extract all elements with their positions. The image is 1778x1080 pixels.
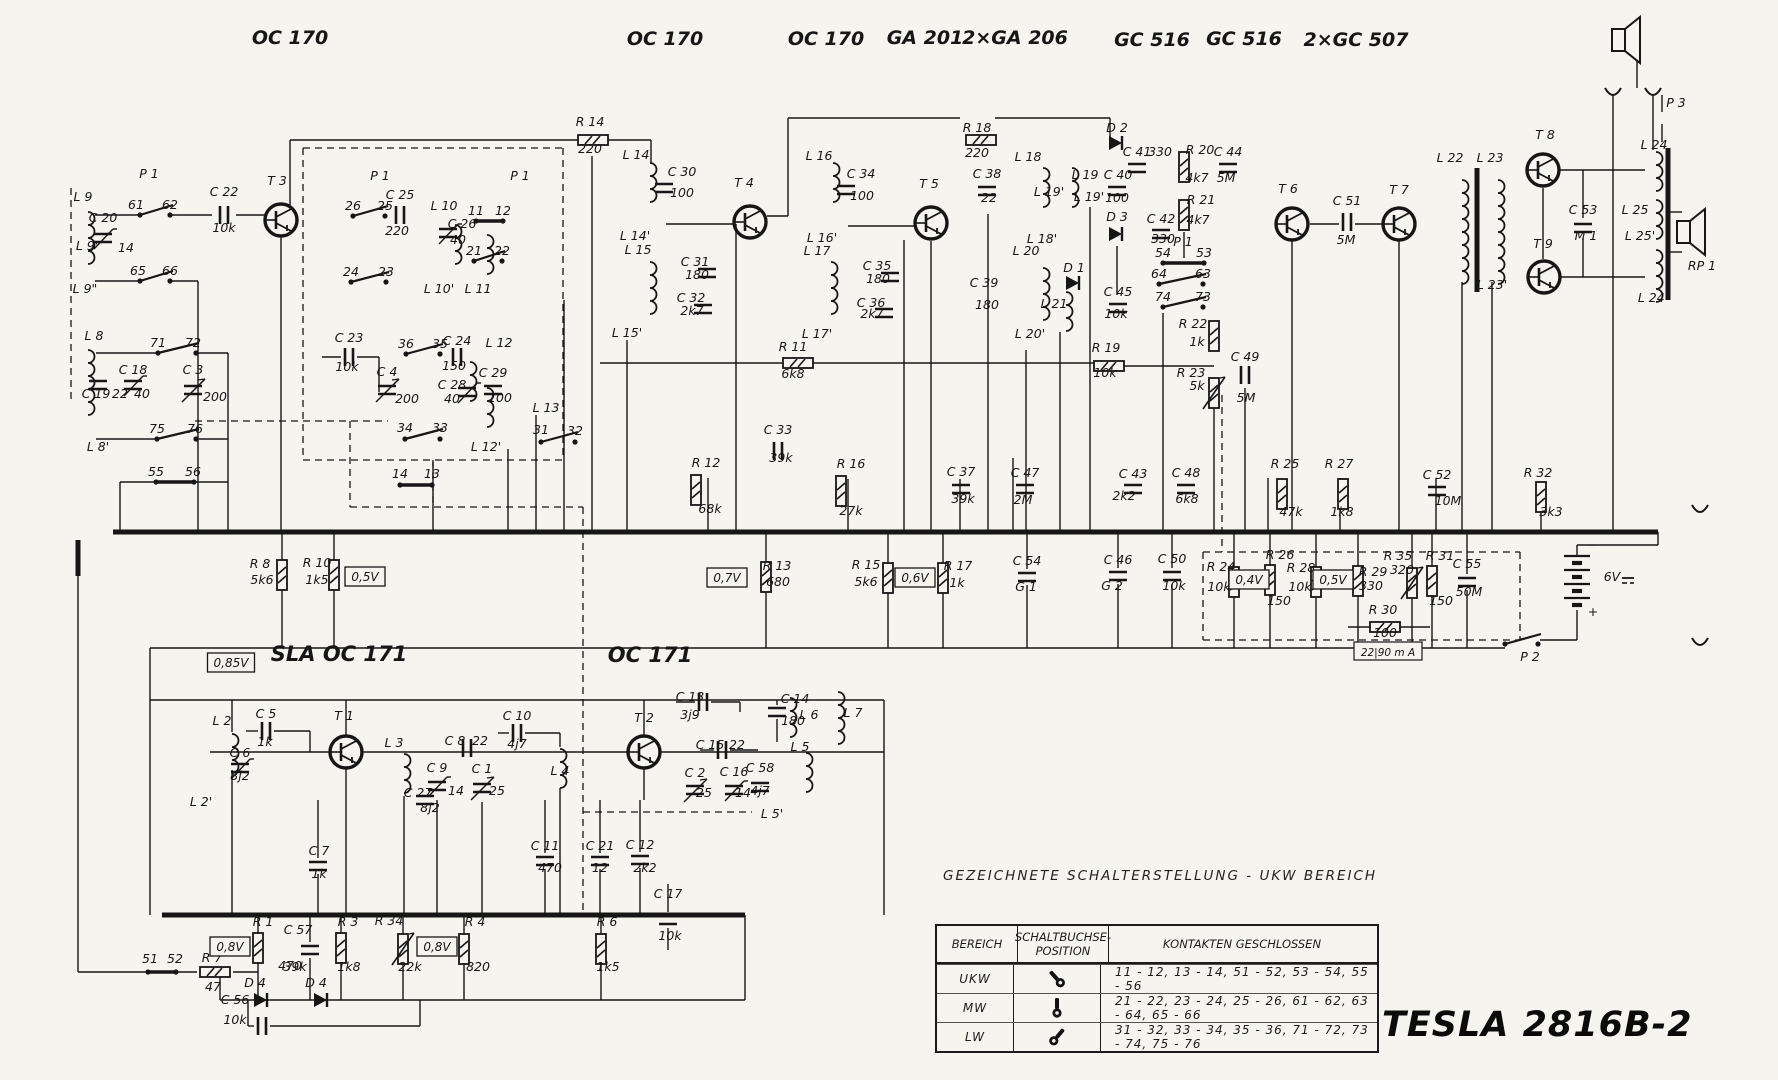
diode-symbol <box>1109 227 1122 241</box>
resistor-symbol <box>883 563 893 593</box>
pot-wiper-arrow <box>409 933 414 934</box>
component-label: C 24 <box>443 333 472 348</box>
switch-open-lever <box>1505 634 1541 644</box>
component-label: 220 <box>578 141 602 156</box>
transistor-symbol <box>745 225 762 234</box>
component-label: C 13 <box>676 689 705 704</box>
component-label: R 13 <box>763 558 792 573</box>
component-label: 10k <box>335 359 359 374</box>
component-label: 25 <box>696 785 712 800</box>
component-label: 5M <box>1217 170 1236 185</box>
component-label: 74 <box>1155 289 1171 304</box>
component-label: 2k7 <box>680 303 703 318</box>
component-label: 55 <box>148 464 164 479</box>
component-label: + <box>1588 604 1598 619</box>
component-label: R 10 <box>303 555 332 570</box>
component-label: 22 <box>472 733 488 748</box>
component-label: 26 <box>345 198 361 213</box>
component-label: T 1 <box>334 708 354 723</box>
component-label: L 21 <box>1041 296 1068 311</box>
component-label: C 54 <box>1013 553 1042 568</box>
component-label: 8j2 <box>420 800 439 815</box>
device-type-label: GC 516 <box>1206 28 1282 50</box>
component-label: 1k5 <box>305 572 328 587</box>
component-label: C 48 <box>1172 465 1201 480</box>
component-label: 1k <box>1189 334 1205 349</box>
component-label: C 51 <box>1333 193 1362 208</box>
voltage-badge-label: 0,5V <box>351 570 379 584</box>
component-label: 54 <box>1155 245 1171 260</box>
terminal-hook-icon <box>1692 638 1708 645</box>
component-label: 200 <box>395 391 419 406</box>
component-label: 6V <box>1604 569 1622 584</box>
switch-contact <box>167 278 172 283</box>
coil-symbol <box>1043 268 1050 320</box>
component-label: C 58 <box>746 760 775 775</box>
component-label: 100 <box>850 188 874 203</box>
component-label: P 1 <box>510 168 529 183</box>
component-label: C 43 <box>1119 466 1148 481</box>
component-label: C 57 <box>284 922 313 937</box>
component-label: R 18 <box>963 120 992 135</box>
component-label: L 10' <box>424 281 454 296</box>
transistor-symbol <box>1538 158 1555 167</box>
component-label: 40 <box>450 232 466 247</box>
switch-contact <box>383 279 388 284</box>
component-label: 24 <box>343 264 359 279</box>
contacts-closed-cell: 31 - 32, 33 - 34, 35 - 36, 71 - 72, 73 -… <box>1101 1023 1377 1051</box>
schematic-canvas: L 9P 16162C 2014C 2210kT 36566L 9'L 9"26… <box>0 0 1778 1080</box>
component-label: 34 <box>397 420 413 435</box>
col-bereich-header: BEREICH <box>937 926 1018 962</box>
component-label: L 13 <box>533 400 560 415</box>
component-label: 10k <box>1162 578 1186 593</box>
component-label: P 3 <box>1666 95 1686 110</box>
component-label: L 19' <box>1074 189 1104 204</box>
component-label: L 11 <box>465 281 492 296</box>
component-label: 8j2 <box>230 768 249 783</box>
device-type-label: GC 516 <box>1114 29 1190 51</box>
component-label: L 18 <box>1015 149 1042 164</box>
component-label: C 8 <box>445 733 466 748</box>
component-label: 32 <box>567 423 583 438</box>
component-label: T 9 <box>1533 236 1553 251</box>
component-label: D 4 <box>305 975 327 990</box>
component-label: C 20 <box>89 210 118 225</box>
component-label: L 23 <box>1477 150 1504 165</box>
contacts-closed-cell: 11 - 12, 13 - 14, 51 - 52, 53 - 54, 55 -… <box>1101 965 1377 993</box>
component-label: T 8 <box>1535 127 1555 142</box>
component-label: C 26 <box>448 216 477 231</box>
component-label: C 56 <box>221 992 250 1007</box>
voltage-badge-label: 0,8V <box>423 940 451 954</box>
component-label: 10k <box>1207 579 1231 594</box>
component-label: 61 <box>128 197 144 212</box>
contact-table-header: BEREICH SCHALTBUCHSE- POSITION KONTAKTEN… <box>937 926 1377 964</box>
switch-contact <box>1200 281 1205 286</box>
component-label: T 5 <box>919 176 939 191</box>
component-label: 68k <box>698 501 722 516</box>
component-label: C 12 <box>626 837 655 852</box>
brand-logo: TESLA 2816B-2 <box>1382 1005 1693 1045</box>
resistor-symbol <box>1209 321 1219 351</box>
component-label: 2k2 <box>633 860 656 875</box>
device-type-label: OC 170 <box>252 27 328 49</box>
component-label: 65 <box>130 263 146 278</box>
component-label: L 17 <box>804 243 831 258</box>
component-label: 2k2 <box>1112 488 1135 503</box>
component-label: 100 <box>1105 190 1129 205</box>
transistor-symbol <box>745 210 762 219</box>
switch-contact <box>437 436 442 441</box>
section-title: OC 171 <box>608 643 692 667</box>
component-label: 27k <box>839 503 863 518</box>
component-label: L 2' <box>190 794 212 809</box>
component-label: 14 <box>735 785 751 800</box>
transistor-symbol <box>341 740 358 749</box>
component-label: 5k <box>1189 378 1205 393</box>
component-label: 330 <box>1151 231 1175 246</box>
component-label: 4k7 <box>1185 170 1208 185</box>
switch-contact <box>437 351 442 356</box>
component-label: G 2 <box>1101 578 1123 593</box>
component-label: C 42 <box>1147 211 1176 226</box>
contact-table-row: MW21 - 22, 23 - 24, 25 - 26, 61 - 62, 63… <box>937 993 1377 1022</box>
component-label: 10k <box>658 928 682 943</box>
component-label: 1k8 <box>1330 504 1353 519</box>
component-label: 76 <box>187 421 203 436</box>
contact-table-row: UKW11 - 12, 13 - 14, 51 - 52, 53 - 54, 5… <box>937 964 1377 993</box>
component-label: R 32 <box>1524 465 1553 480</box>
speaker-icon <box>1677 221 1690 243</box>
transistor-symbol <box>1287 212 1304 221</box>
component-label: C 47 <box>1011 465 1040 480</box>
terminal-hook-icon <box>1692 505 1708 512</box>
component-label: 25 <box>489 783 505 798</box>
voltage-badge-label: 0,85V <box>214 656 250 670</box>
component-label: 470 <box>538 860 562 875</box>
component-label: 150 <box>1429 593 1453 608</box>
component-label: 10k <box>1104 306 1128 321</box>
component-label: 22 <box>494 243 510 258</box>
component-label: 56 <box>185 464 201 479</box>
component-label: C 40 <box>1104 167 1133 182</box>
switch-contact <box>1535 641 1540 646</box>
component-label: R 29 <box>1359 564 1388 579</box>
component-label: 23 <box>378 264 394 279</box>
component-label: R 16 <box>837 456 866 471</box>
component-label: 320 <box>1390 562 1414 577</box>
component-label: 180 <box>975 297 999 312</box>
device-type-label: OC 170 <box>788 28 864 50</box>
coil-symbol <box>650 262 657 314</box>
transistor-symbol <box>926 226 943 235</box>
component-label: L 8' <box>87 439 109 454</box>
component-label: C 2 <box>685 765 706 780</box>
resistor-symbol <box>253 933 263 963</box>
component-label: L 25' <box>1625 228 1655 243</box>
component-label: 6k8 <box>1175 491 1198 506</box>
component-label: C 7 <box>309 843 330 858</box>
component-label: D 1 <box>1063 260 1085 275</box>
transistor-symbol <box>1287 227 1304 236</box>
component-label: R 6 <box>597 914 618 929</box>
component-label: C 25 <box>386 187 415 202</box>
device-type-label: GA 201 <box>887 27 964 49</box>
band-cell: LW <box>937 1023 1014 1051</box>
coil-symbol <box>831 262 838 314</box>
coil-symbol <box>1656 152 1663 191</box>
component-label: 73 <box>1195 289 1211 304</box>
transistor-symbol <box>1394 212 1411 221</box>
coil-symbol <box>1656 200 1663 239</box>
component-label: 5M <box>1237 390 1256 405</box>
component-label: 10k <box>1093 365 1117 380</box>
component-label: 3j9 <box>680 707 699 722</box>
component-label: D 4 <box>244 975 266 990</box>
component-label: C 10 <box>503 708 532 723</box>
transistor-symbol <box>639 740 656 749</box>
switch-contact <box>572 439 577 444</box>
transistor-symbol <box>1394 227 1411 236</box>
switch-contact <box>382 213 387 218</box>
component-label: 22 <box>112 386 128 401</box>
component-label: L 15 <box>625 242 652 257</box>
component-label: 39k <box>769 450 793 465</box>
component-label: 53 <box>1196 245 1212 260</box>
component-label: R 35 <box>1384 548 1413 563</box>
component-label: T 2 <box>634 710 654 725</box>
component-label: 2M <box>1014 492 1033 507</box>
component-label: C 37 <box>947 464 976 479</box>
component-label: 5k6 <box>854 574 877 589</box>
component-label: L 15' <box>612 325 642 340</box>
coil-symbol <box>650 163 657 202</box>
component-label: 4k7 <box>1186 212 1209 227</box>
component-label: C 55 <box>1453 556 1482 571</box>
pot-wiper-arrow <box>1220 377 1225 378</box>
transistor-symbol <box>1539 265 1556 274</box>
component-label: C 22 <box>210 184 239 199</box>
component-label: 40 <box>444 391 460 406</box>
component-label: 14 <box>448 783 464 798</box>
component-label: D 2 <box>1106 120 1128 135</box>
diode-symbol <box>254 993 267 1007</box>
component-label: R 8 <box>250 556 271 571</box>
component-label: 22 <box>981 190 997 205</box>
component-label: 1k <box>311 866 327 881</box>
component-label: C 18 <box>119 362 148 377</box>
component-label: R 4 <box>465 914 486 929</box>
band-cell: UKW <box>937 965 1014 993</box>
component-label: 150 <box>442 358 466 373</box>
terminal-hook-icon <box>1645 88 1661 95</box>
transistor-symbol <box>639 755 656 764</box>
component-label: C 30 <box>668 164 697 179</box>
component-label: 47k <box>1279 504 1303 519</box>
component-label: T 7 <box>1389 182 1409 197</box>
transistor-symbol <box>926 211 943 220</box>
device-type-label: 2×GA 206 <box>962 27 1068 49</box>
coil-symbol <box>1498 180 1505 284</box>
component-label: L 14' <box>620 228 650 243</box>
component-label: 14 <box>392 466 408 481</box>
component-label: 100 <box>1373 625 1397 640</box>
contacts-closed-cell: 21 - 22, 23 - 24, 25 - 26, 61 - 62, 63 -… <box>1101 994 1377 1022</box>
component-label: R 17 <box>944 558 973 573</box>
resistor-symbol <box>1427 566 1437 596</box>
component-label: C 41 <box>1123 144 1152 159</box>
component-label: 66 <box>162 263 178 278</box>
switch-position-icon <box>1046 1025 1068 1049</box>
component-label: 13 <box>424 466 440 481</box>
component-label: C 50 <box>1158 551 1187 566</box>
component-label: R 25 <box>1271 456 1300 471</box>
component-label: 1k8 <box>337 959 360 974</box>
component-label: 220 <box>385 223 409 238</box>
component-label: P 2 <box>1520 649 1540 664</box>
component-label: L 6 <box>800 707 819 722</box>
component-label: C 16 <box>720 764 749 779</box>
component-label: C 19 <box>82 386 111 401</box>
component-label: L 5' <box>761 806 783 821</box>
component-label: C 1 <box>472 761 493 776</box>
component-label: L 25 <box>1622 202 1649 217</box>
component-label: C 39 <box>970 275 999 290</box>
component-label: C 52 <box>1423 467 1452 482</box>
switch-contact <box>193 436 198 441</box>
component-label: L 20' <box>1015 326 1045 341</box>
component-label: T 4 <box>734 175 754 190</box>
component-label: 62 <box>162 197 178 212</box>
band-cell: MW <box>937 994 1014 1022</box>
component-label: R 20 <box>1186 142 1215 157</box>
col-schaltbuchse-header: SCHALTBUCHSE- POSITION <box>1018 926 1109 962</box>
component-label: R 1 <box>253 914 274 929</box>
switch-position-cell <box>1014 994 1101 1022</box>
component-label: 1k <box>949 575 965 590</box>
switch-position-cell <box>1014 965 1101 993</box>
component-label: L 9" <box>73 281 98 296</box>
component-label: 10k <box>223 1012 247 1027</box>
component-label: 10k <box>1288 579 1312 594</box>
component-label: M 1 <box>1575 228 1598 243</box>
coil-symbol <box>833 163 840 202</box>
diode-symbol <box>314 993 327 1007</box>
voltage-badge-label: 0,6V <box>901 571 929 585</box>
switch-contact <box>499 258 504 263</box>
component-label: 100 <box>488 390 512 405</box>
component-label: 220 <box>965 145 989 160</box>
varcap-arrow <box>182 379 205 402</box>
component-label: L 22 <box>1437 150 1464 165</box>
component-label: L 8 <box>85 328 104 343</box>
component-label: 39k <box>951 491 975 506</box>
speaker-icon <box>1625 17 1640 63</box>
component-label: RP 1 <box>1688 258 1716 273</box>
component-label: P 1 <box>139 166 158 181</box>
component-label: 150 <box>1267 593 1291 608</box>
component-label: R 12 <box>692 455 721 470</box>
coil-symbol <box>806 753 813 792</box>
component-label: 4j7 <box>750 783 769 798</box>
component-label: 5M <box>1337 232 1356 247</box>
component-label: 12 <box>495 203 511 218</box>
component-label: L 20 <box>1013 243 1040 258</box>
component-label: C 17 <box>654 886 683 901</box>
component-label: C 4 <box>377 364 398 379</box>
coil-symbol <box>88 350 95 415</box>
component-label: R 11 <box>779 339 808 354</box>
component-label: D 3 <box>1106 209 1128 224</box>
component-label: R 14 <box>576 114 605 129</box>
component-label: 31 <box>533 422 549 437</box>
component-label: 5k6 <box>250 572 273 587</box>
component-label: R 19 <box>1092 340 1121 355</box>
diode-symbol <box>1066 276 1079 290</box>
component-label: L 19' <box>1034 184 1064 199</box>
component-label: C 11 <box>531 838 560 853</box>
component-label: 100 <box>670 185 694 200</box>
component-label: R 31 <box>1426 548 1455 563</box>
component-label: 39k <box>283 959 307 974</box>
component-label: P 1 <box>370 168 389 183</box>
component-label: 10k <box>212 220 236 235</box>
component-label: R 22 <box>1179 316 1208 331</box>
component-label: L 12 <box>486 335 513 350</box>
component-label: 6k8 <box>781 366 804 381</box>
component-label: R 30 <box>1369 602 1398 617</box>
component-label: 33 <box>432 420 448 435</box>
component-label: C 21 <box>586 838 615 853</box>
component-label: 3k3 <box>1539 504 1562 519</box>
component-label: R 34 <box>375 913 404 928</box>
pot-wiper-arrow <box>1418 567 1423 568</box>
transistor-symbol <box>1538 173 1555 182</box>
component-label: 36 <box>398 336 414 351</box>
component-label: 330 <box>1148 144 1172 159</box>
switch-position-icon <box>1046 967 1068 991</box>
contact-table: BEREICH SCHALTBUCHSE- POSITION KONTAKTEN… <box>935 924 1379 1053</box>
component-label: 51 <box>142 951 158 966</box>
component-label: L 5 <box>791 739 810 754</box>
section-title: SLA OC 171 <box>271 642 407 666</box>
component-label: C 53 <box>1569 202 1598 217</box>
transistor-symbol <box>276 223 293 232</box>
component-label: L 9' <box>76 238 98 253</box>
transistor-symbol <box>276 208 293 217</box>
switch-contact <box>193 350 198 355</box>
component-label: C 23 <box>335 330 364 345</box>
component-label: L 23' <box>1477 277 1507 292</box>
component-label: L 19 <box>1072 167 1099 182</box>
component-label: 1k5 <box>596 959 619 974</box>
component-label: 4j7 <box>507 736 526 751</box>
component-label: T 3 <box>267 173 287 188</box>
component-label: L 4 <box>551 763 570 778</box>
switch-position-icon <box>1046 996 1068 1020</box>
switch-contact <box>167 212 172 217</box>
component-label: 22k <box>398 959 422 974</box>
component-label: 71 <box>150 335 166 350</box>
component-label: 180 <box>685 267 709 282</box>
col-kontakten-header: KONTAKTEN GESCHLOSSEN <box>1109 926 1377 962</box>
component-label: 200 <box>203 389 227 404</box>
component-label: 1k <box>257 734 273 749</box>
component-label: 63 <box>1195 266 1211 281</box>
component-label: 12 <box>592 860 608 875</box>
component-label: C 14 <box>781 691 810 706</box>
